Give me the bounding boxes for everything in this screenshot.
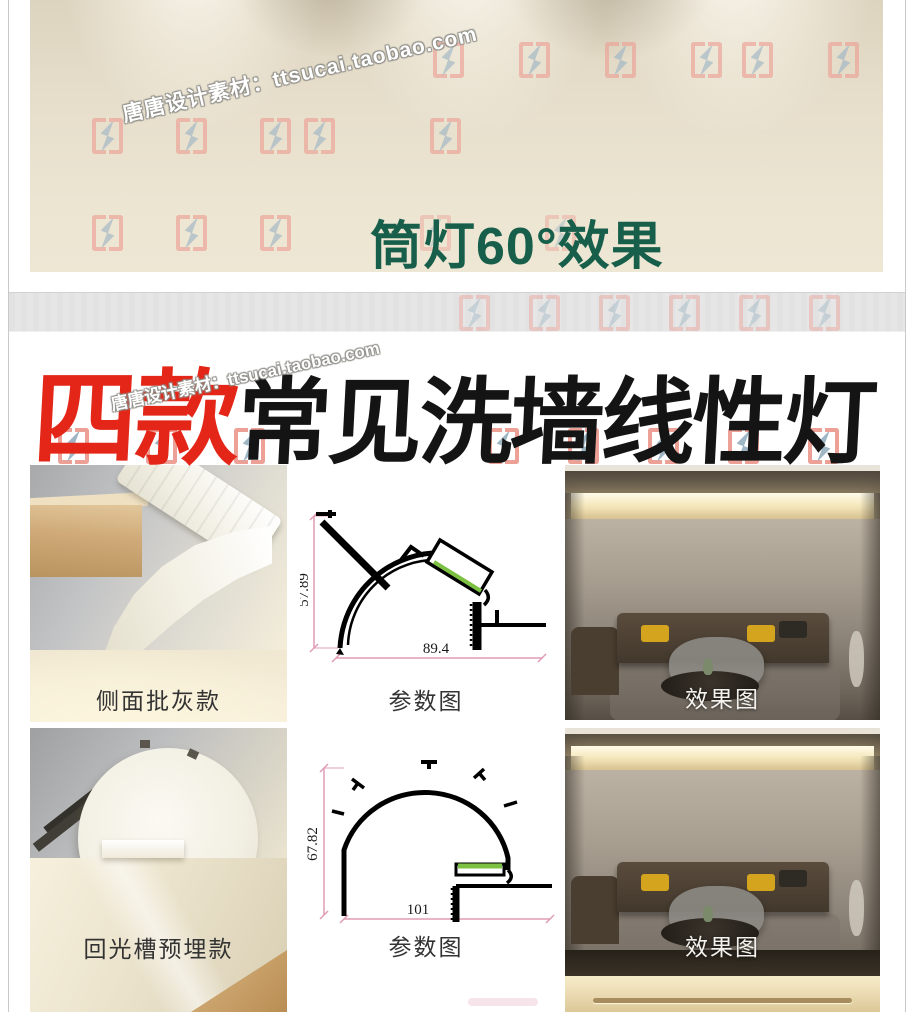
watermark-logo-icon xyxy=(260,215,291,251)
pillow-dark xyxy=(779,870,807,887)
watermark-logo-icon xyxy=(529,295,560,331)
watermark-logo-icon xyxy=(430,118,461,154)
watermark-logo-icon xyxy=(828,42,859,78)
floor-sculpture xyxy=(849,631,864,687)
pillow-yellow xyxy=(747,625,775,642)
watermark-logo-icon xyxy=(669,295,700,331)
table-plant xyxy=(703,659,713,675)
wall-wash-light-band xyxy=(571,493,874,519)
product-label-row2: 回光槽预埋款 xyxy=(30,930,287,964)
divider-band xyxy=(9,292,905,332)
product-label-row1: 侧面批灰款 xyxy=(30,682,287,716)
watermark-logo-icon xyxy=(739,295,770,331)
watermark-logo-icon xyxy=(176,215,207,251)
watermark-text: 唐唐设计素材：ttsucai.taobao.com xyxy=(119,18,480,129)
diagram-label-row1: 参数图 xyxy=(287,682,565,716)
product-detail-image: 唐唐设计素材：ttsucai.taobao.com 筒灯60°效果 四款常见洗墙… xyxy=(0,0,913,1012)
effect-photo-2 xyxy=(565,728,880,1012)
dim-height-label: 67.82 xyxy=(306,827,321,861)
watermark-remnant xyxy=(468,998,538,1006)
page-right-border xyxy=(905,0,906,1012)
watermark-logo-icon xyxy=(176,118,207,154)
led-ledge xyxy=(102,840,184,858)
linear-light-groove xyxy=(593,998,852,1003)
pillow-dark xyxy=(779,621,807,638)
profile-diagram-1: 57.89 89.4 xyxy=(300,498,556,674)
effect-label-row1: 效果图 xyxy=(565,680,880,714)
profile-diagram-2: 67.82 101 xyxy=(306,752,562,930)
lit-shelf xyxy=(565,976,880,1012)
wall-wash-light-band xyxy=(571,746,874,770)
dim-width-label: 101 xyxy=(407,902,430,918)
diagram-label-row2: 参数图 xyxy=(287,928,565,962)
watermark-logo-icon xyxy=(92,118,123,154)
watermark-logo-icon xyxy=(691,42,722,78)
watermark-logo-icon xyxy=(742,42,773,78)
dim-height-label: 57.89 xyxy=(300,573,312,607)
downlight-effect-photo: 唐唐设计素材：ttsucai.taobao.com 筒灯60°效果 xyxy=(30,0,883,272)
watermark-logo-icon xyxy=(605,42,636,78)
watermark-logo-icon xyxy=(599,295,630,331)
watermark-logo-icon xyxy=(260,118,291,154)
banner-caption: 筒灯60°效果 xyxy=(370,204,664,272)
headline-rest: 常见洗墙线性灯 xyxy=(235,370,878,475)
pillow-yellow xyxy=(641,625,669,642)
page-left-border xyxy=(8,0,9,1012)
product-photo-rebate-trimless xyxy=(30,728,287,1012)
watermark-logo-icon xyxy=(92,215,123,251)
pillow-yellow xyxy=(641,874,669,891)
pillow-yellow xyxy=(747,874,775,891)
headline: 四款常见洗墙线性灯 xyxy=(30,334,879,485)
watermark-logo-icon xyxy=(809,295,840,331)
effect-label-row2: 效果图 xyxy=(565,928,880,962)
watermark-logo-icon xyxy=(519,42,550,78)
table-plant xyxy=(703,906,713,922)
watermark-logo-icon xyxy=(459,295,490,331)
clip-nub xyxy=(140,740,150,748)
cardboard-box xyxy=(30,505,142,577)
watermark-logo-icon xyxy=(304,118,335,154)
dim-width-label: 89.4 xyxy=(423,641,450,657)
